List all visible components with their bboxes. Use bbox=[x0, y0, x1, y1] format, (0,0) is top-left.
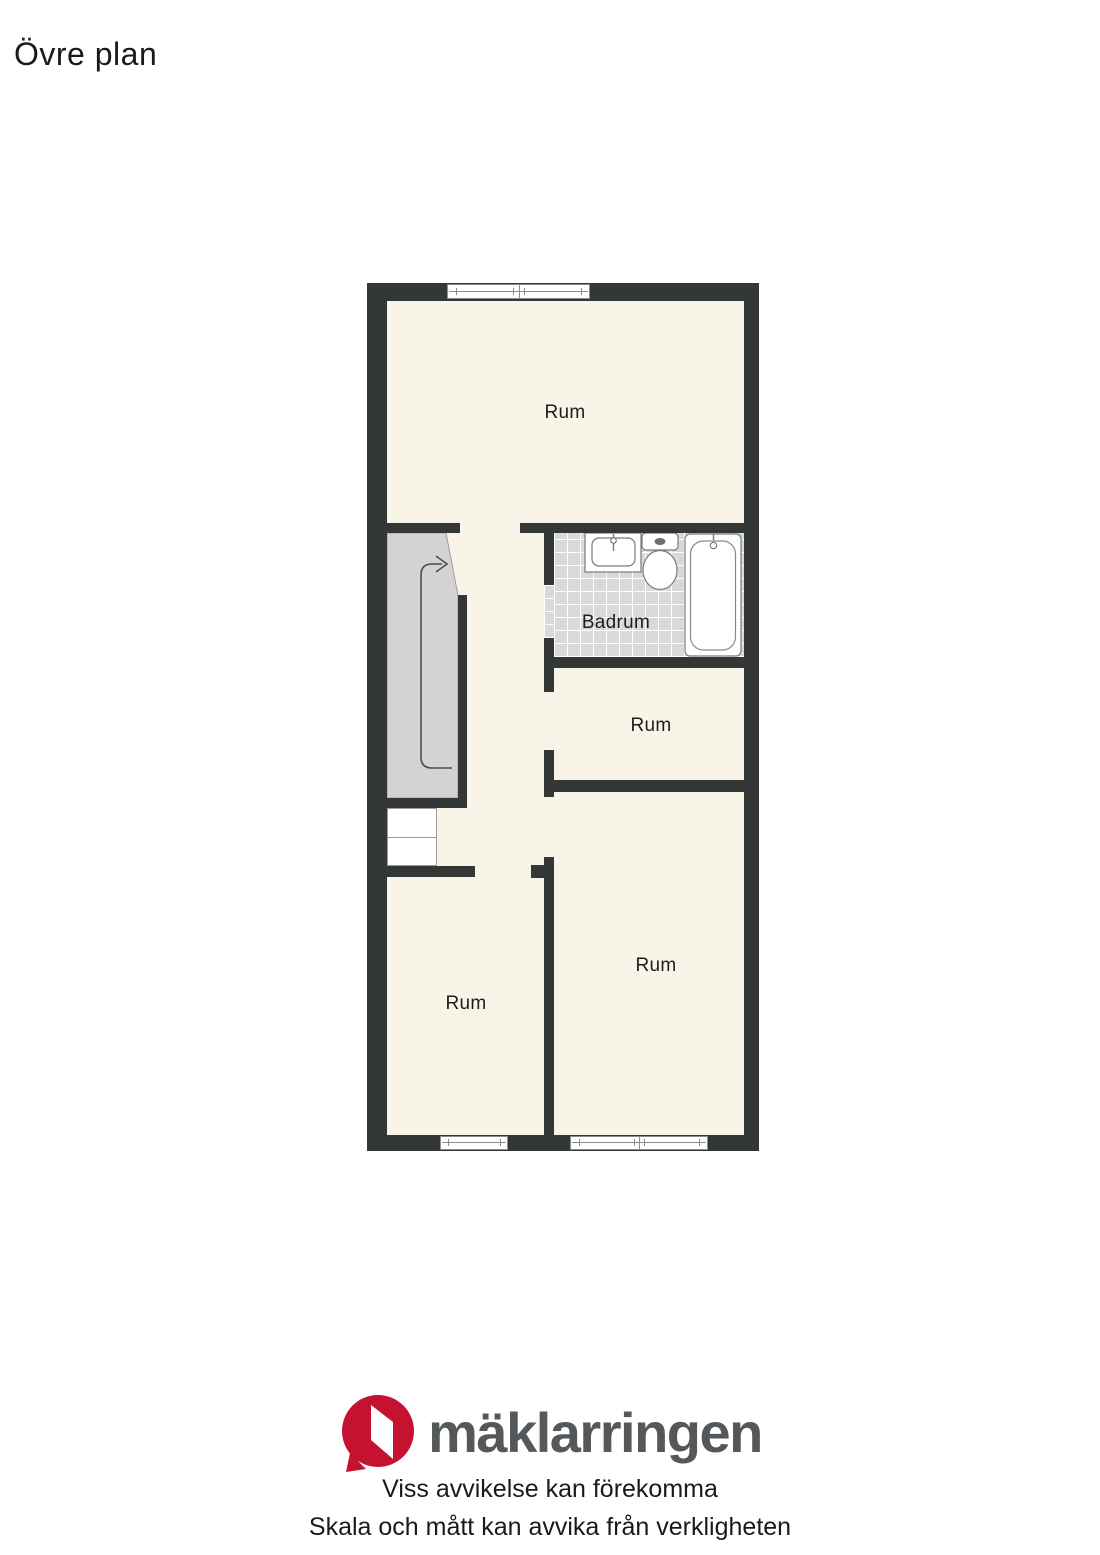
staircase-area bbox=[387, 533, 458, 798]
window-tick bbox=[699, 1139, 700, 1146]
bathroom-fixtures bbox=[554, 533, 744, 657]
window-pane-divider bbox=[639, 1137, 640, 1149]
room-label-bathroom: Badrum bbox=[582, 612, 650, 634]
room-label-top: Rum bbox=[544, 402, 585, 424]
window-tick bbox=[579, 1139, 580, 1146]
window-tick bbox=[448, 1139, 449, 1146]
wall-segment bbox=[387, 523, 460, 533]
toilet-icon bbox=[642, 533, 678, 590]
window-tick bbox=[513, 288, 514, 295]
window-frame-line bbox=[442, 1142, 506, 1143]
window-tick bbox=[644, 1139, 645, 1146]
bathtub-icon bbox=[685, 534, 741, 656]
bathroom-door-threshold bbox=[544, 585, 554, 638]
window-bottom-left bbox=[440, 1136, 508, 1150]
page-title: Övre plan bbox=[14, 36, 157, 73]
brand-logo: mäklarringen bbox=[0, 1393, 1100, 1477]
wall-segment bbox=[544, 523, 554, 585]
staircase bbox=[387, 533, 467, 798]
disclaimer-line-2: Skala och mått kan avvika från verklighe… bbox=[0, 1508, 1100, 1546]
window-tick bbox=[456, 288, 457, 295]
window-pane-divider bbox=[519, 285, 520, 298]
wall-segment bbox=[544, 657, 744, 668]
maklarringen-speech-bubble-icon bbox=[338, 1393, 418, 1477]
window-tick bbox=[524, 288, 525, 295]
wall-segment bbox=[544, 857, 554, 1135]
room-label-middle: Rum bbox=[630, 715, 671, 737]
wall-segment bbox=[544, 780, 744, 792]
floorplan: Rum Badrum Rum Rum Rum bbox=[367, 283, 759, 1151]
wall-segment bbox=[387, 798, 467, 808]
stair-step bbox=[387, 808, 437, 838]
room-label-lower-right: Rum bbox=[635, 955, 676, 977]
window-tick bbox=[581, 288, 582, 295]
wall-segment bbox=[367, 866, 475, 877]
sink-icon bbox=[585, 533, 641, 572]
window-bottom-right bbox=[570, 1136, 708, 1150]
wall-segment bbox=[458, 595, 467, 800]
disclaimer: Viss avvikelse kan förekomma Skala och m… bbox=[0, 1470, 1100, 1546]
wall-segment bbox=[531, 865, 544, 878]
room-label-lower-left: Rum bbox=[445, 993, 486, 1015]
disclaimer-line-1: Viss avvikelse kan förekomma bbox=[0, 1470, 1100, 1508]
window-top bbox=[447, 284, 590, 299]
window-tick bbox=[500, 1139, 501, 1146]
stair-step bbox=[387, 837, 437, 866]
window-tick bbox=[634, 1139, 635, 1146]
brand-name: mäklarringen bbox=[428, 1405, 762, 1461]
